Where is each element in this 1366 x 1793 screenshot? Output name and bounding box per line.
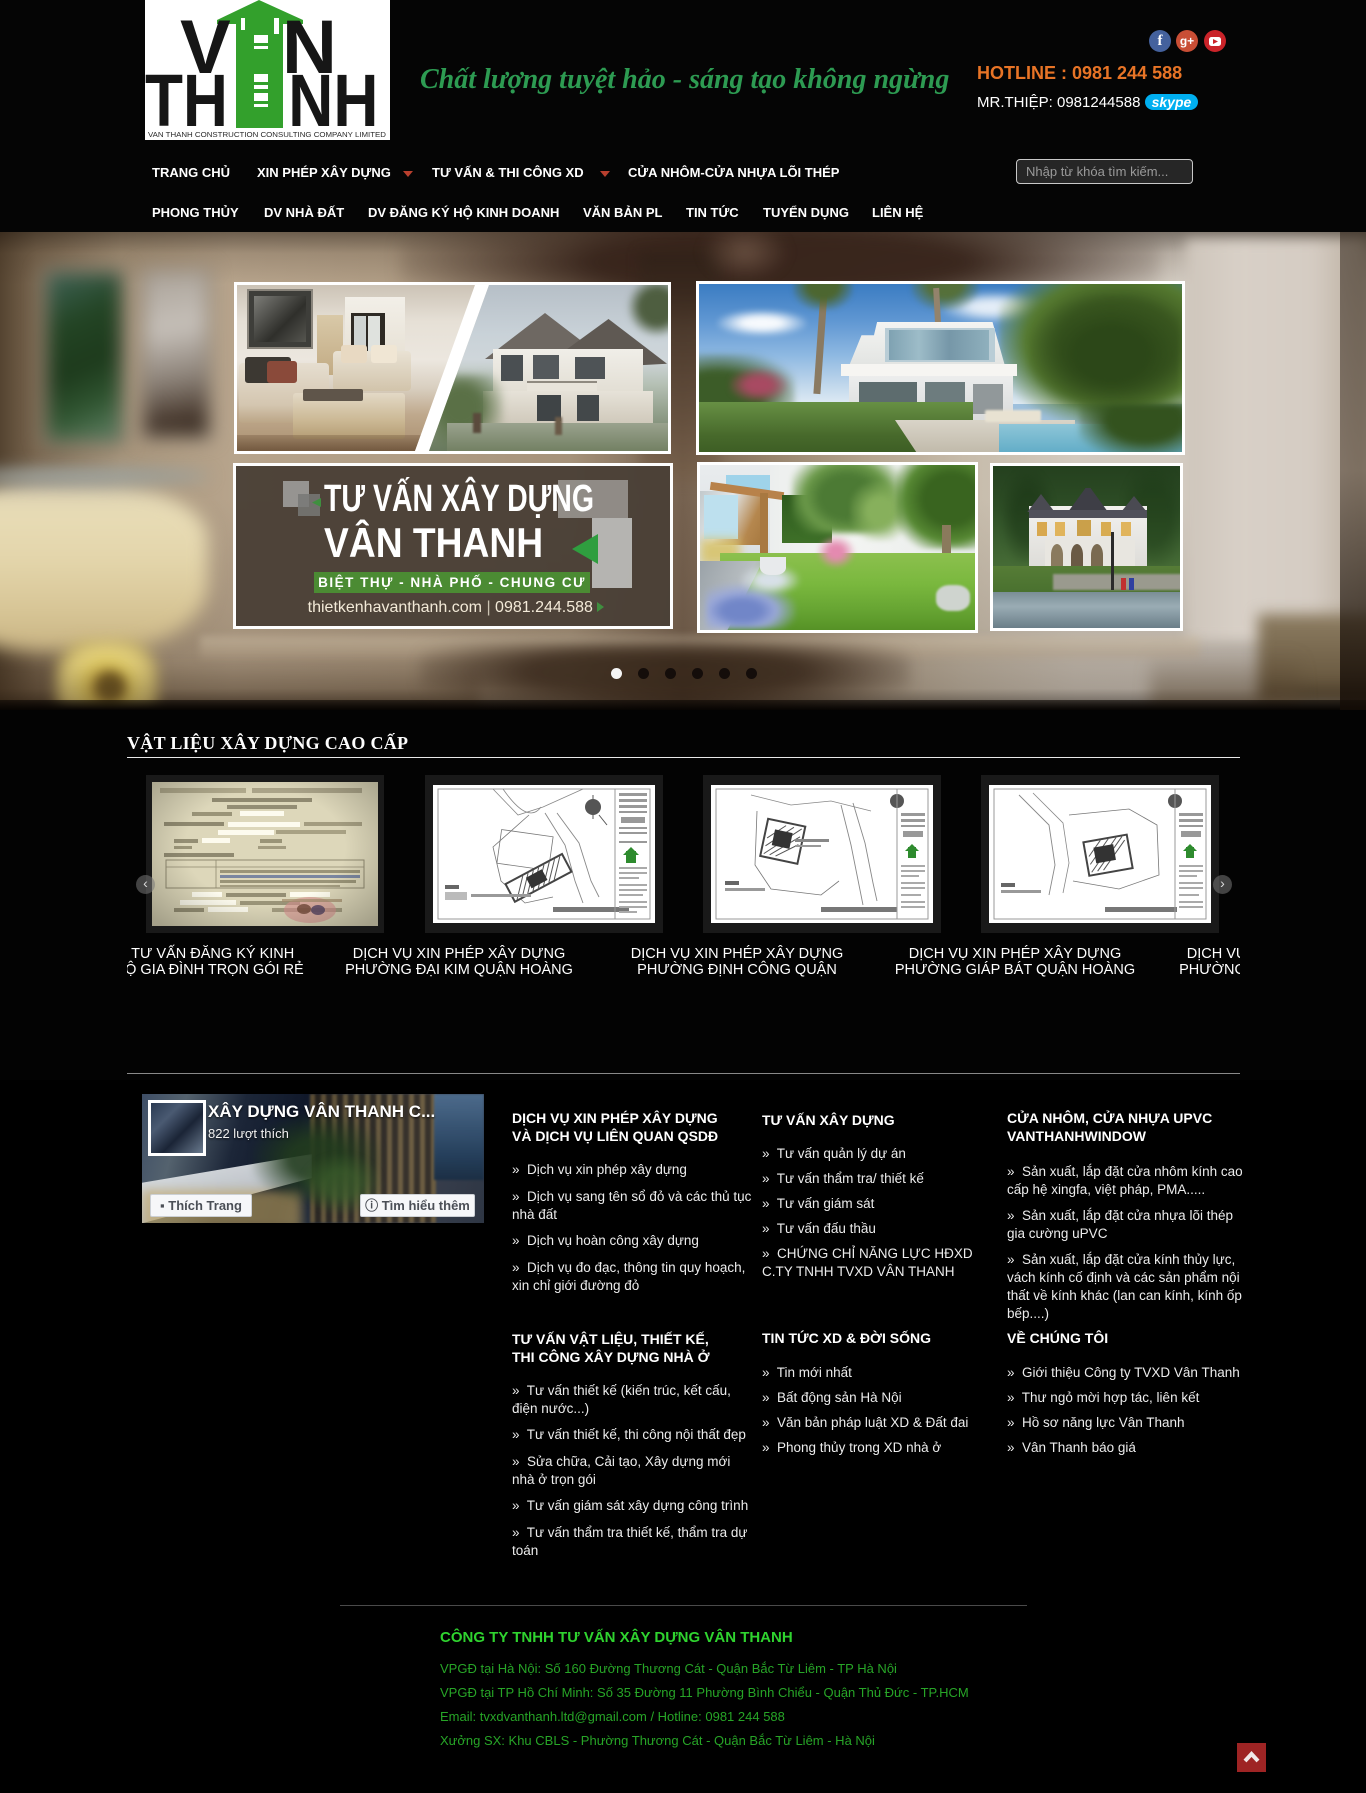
svg-text:TH: TH [145,60,228,140]
svg-text:VAN THANH CONSTRUCTION CONSULT: VAN THANH CONSTRUCTION CONSULTING COMPAN… [148,130,387,139]
svg-text:NH: NH [288,59,378,140]
